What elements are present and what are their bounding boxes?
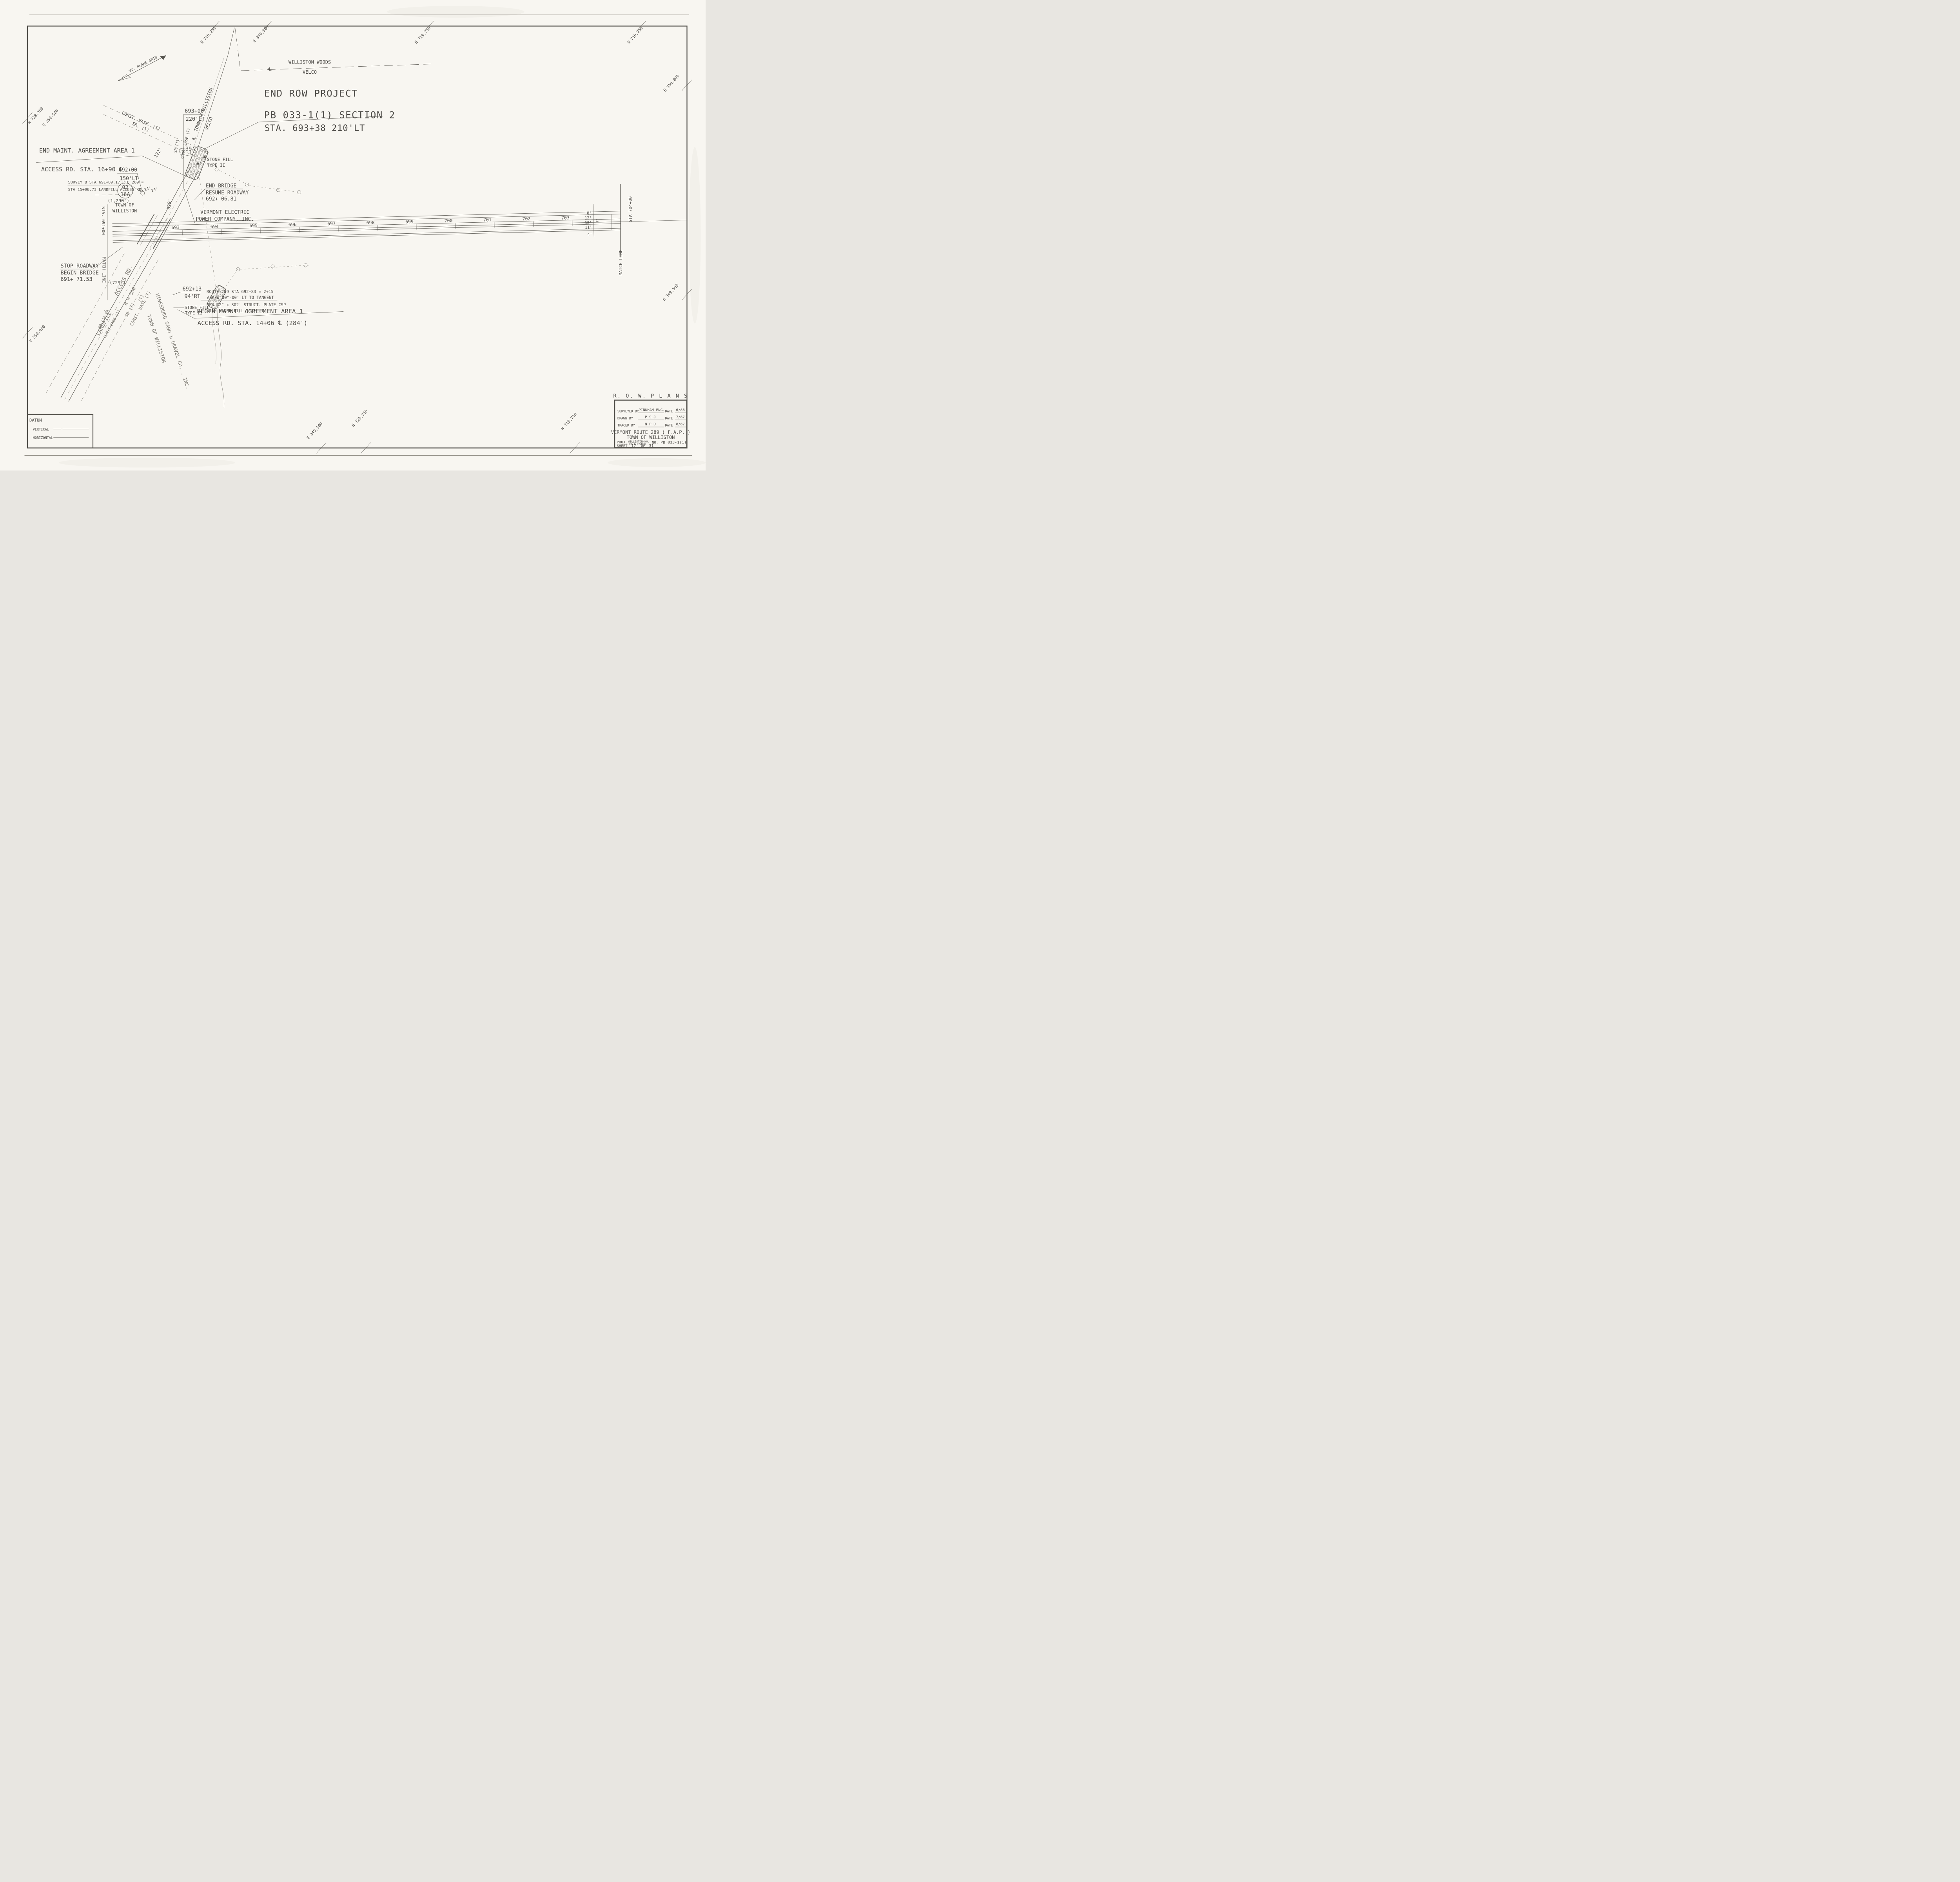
stop-roadway-line1: STOP ROADWAY — [61, 263, 99, 269]
culvert-note-line1: ROUTE 289 STA 692+83 = 2+15 — [207, 290, 274, 294]
centerline-symbol-woods: ℄ — [268, 67, 272, 72]
datum-vertical-label: VERTICAL — [33, 428, 49, 432]
stone-fill-north-line2: TYPE II — [207, 163, 225, 168]
stop-roadway-line2: BEGIN BRIDGE — [61, 270, 99, 276]
survey-note-line1: SURVEY B STA 691+89.17 RTE 289 = — [68, 180, 144, 185]
callout-692-sta: 692+00 — [119, 167, 137, 173]
match-right-station: STA 704+00 — [628, 196, 633, 222]
date-label-3: DATE — [665, 423, 673, 427]
dim-12ft-b: 12' — [585, 221, 592, 225]
match-left-label: MATCH LINE — [102, 257, 107, 283]
williston-label: WILLISTON — [113, 208, 137, 213]
station-label-698: 698 — [366, 220, 374, 225]
parcel-number-top: 02 — [122, 185, 128, 191]
title-town: TOWN OF WILLISTON — [627, 434, 675, 440]
dim-4ft: 4' — [587, 233, 592, 237]
sheet-total: 31 — [649, 444, 654, 448]
station-label-696: 696 — [289, 222, 297, 227]
surveyed-by-value: PINKHAM ENG. — [639, 408, 665, 412]
station-label-702: 702 — [522, 216, 530, 222]
williston-woods-label: WILLISTON WOODS — [289, 60, 331, 65]
project-title-station: STA. 693+38 210'LT — [265, 124, 365, 133]
match-left-station: STA. 691+00 — [101, 206, 106, 235]
stone-fill-north-line1: STONE FILL — [207, 157, 233, 162]
station-label-695: 695 — [249, 223, 258, 229]
datum-horizontal-label: HORIZONTAL — [33, 436, 53, 440]
title-route: VERMONT ROUTE 289 ( F.A.P. ) — [611, 429, 690, 435]
proj-label: PROJ. — [617, 441, 628, 445]
dim-8ft: 8' — [587, 211, 592, 216]
stop-roadway-line3: 691+ 71.53 — [61, 276, 93, 282]
culvert-note-line3: NEW 72" x 302' STRUCT. PLATE CSP — [207, 303, 286, 307]
town-of-label: TOWN OF — [115, 202, 134, 207]
dim-12ft-a: 12' — [584, 216, 592, 220]
culvert-note-line2: ASKEW 80°-00' LT TO TANGENT — [207, 296, 274, 300]
plan-drawing-canvas: 693 694 695 696 697 698 699 700 701 702 … — [0, 0, 706, 470]
datum-title: DATUM — [29, 418, 42, 423]
project-title-line2: PB 033-1(1) SECTION 2 — [264, 109, 396, 120]
traced-by-label: TRACED BY — [617, 423, 635, 427]
drawn-by-value: P S J — [645, 415, 656, 420]
vepco-line1: VERMONT ELECTRIC — [200, 210, 249, 216]
row-plan-sheet: 693 694 695 696 697 698 699 700 701 702 … — [0, 0, 706, 470]
traced-date: 8/87 — [676, 422, 685, 427]
match-right-label: MATCH LINE — [618, 249, 623, 275]
project-title-line1: END ROW PROJECT — [264, 88, 358, 99]
traced-by-value: N P D — [645, 422, 656, 427]
sheet-label: SHEET — [617, 444, 628, 448]
drawn-by-label: DRAWN BY — [617, 416, 633, 420]
station-label-700: 700 — [444, 218, 452, 224]
callout-69213-sta: 692+13 — [183, 286, 202, 292]
centerline-symbol-dims: ℄ — [595, 219, 599, 223]
survey-note-line2: STA 15+06.73 LANDFILL ACCESS RD. — [68, 187, 144, 192]
station-label-697: 697 — [327, 221, 336, 227]
station-label-701: 701 — [483, 217, 492, 223]
end-bridge-line3: 692+ 06.81 — [206, 196, 236, 202]
station-label-694: 694 — [211, 223, 219, 229]
vepco-line2: POWER COMPANY, INC. — [196, 216, 254, 222]
date-label-2: DATE — [665, 416, 673, 420]
station-label-693: 693 — [171, 225, 180, 231]
row-plans-heading: R. O. W. P L A N S — [613, 393, 688, 399]
sheet-number: 17 — [632, 444, 636, 448]
begin-maint-line1: BEGIN MAINT. AGREEMENT AREA 1 — [197, 308, 303, 315]
station-label-703: 703 — [561, 215, 570, 221]
begin-maint-line2: ACCESS RD. STA. 14+06 ℄ (284') — [198, 320, 308, 327]
drawn-date: 7/87 — [676, 415, 685, 420]
callout-69213-offset: 94'RT — [185, 293, 201, 300]
end-maint-line2: ACCESS RD. STA. 16+90 ℄ — [41, 166, 123, 173]
end-bridge-line2: RESUME ROADWAY — [206, 190, 249, 196]
proj-number: PB 033-1(1) — [661, 441, 686, 445]
surveyed-date: 6/86 — [676, 408, 685, 412]
dim-11ft: 11' — [585, 225, 592, 230]
surveyed-by-label: SURVEYED BY — [617, 409, 639, 413]
parcel-number-bottom: 16A — [120, 191, 130, 198]
paper-background — [0, 0, 706, 470]
velco-label: VELCO — [303, 69, 317, 75]
end-maint-line1: END MAINT. AGREEMENT AREA 1 — [39, 147, 135, 154]
of-label: OF — [641, 444, 645, 448]
end-bridge-line1: END BRIDGE — [206, 183, 236, 189]
station-label-699: 699 — [405, 219, 414, 225]
date-label-1: DATE — [665, 409, 673, 413]
